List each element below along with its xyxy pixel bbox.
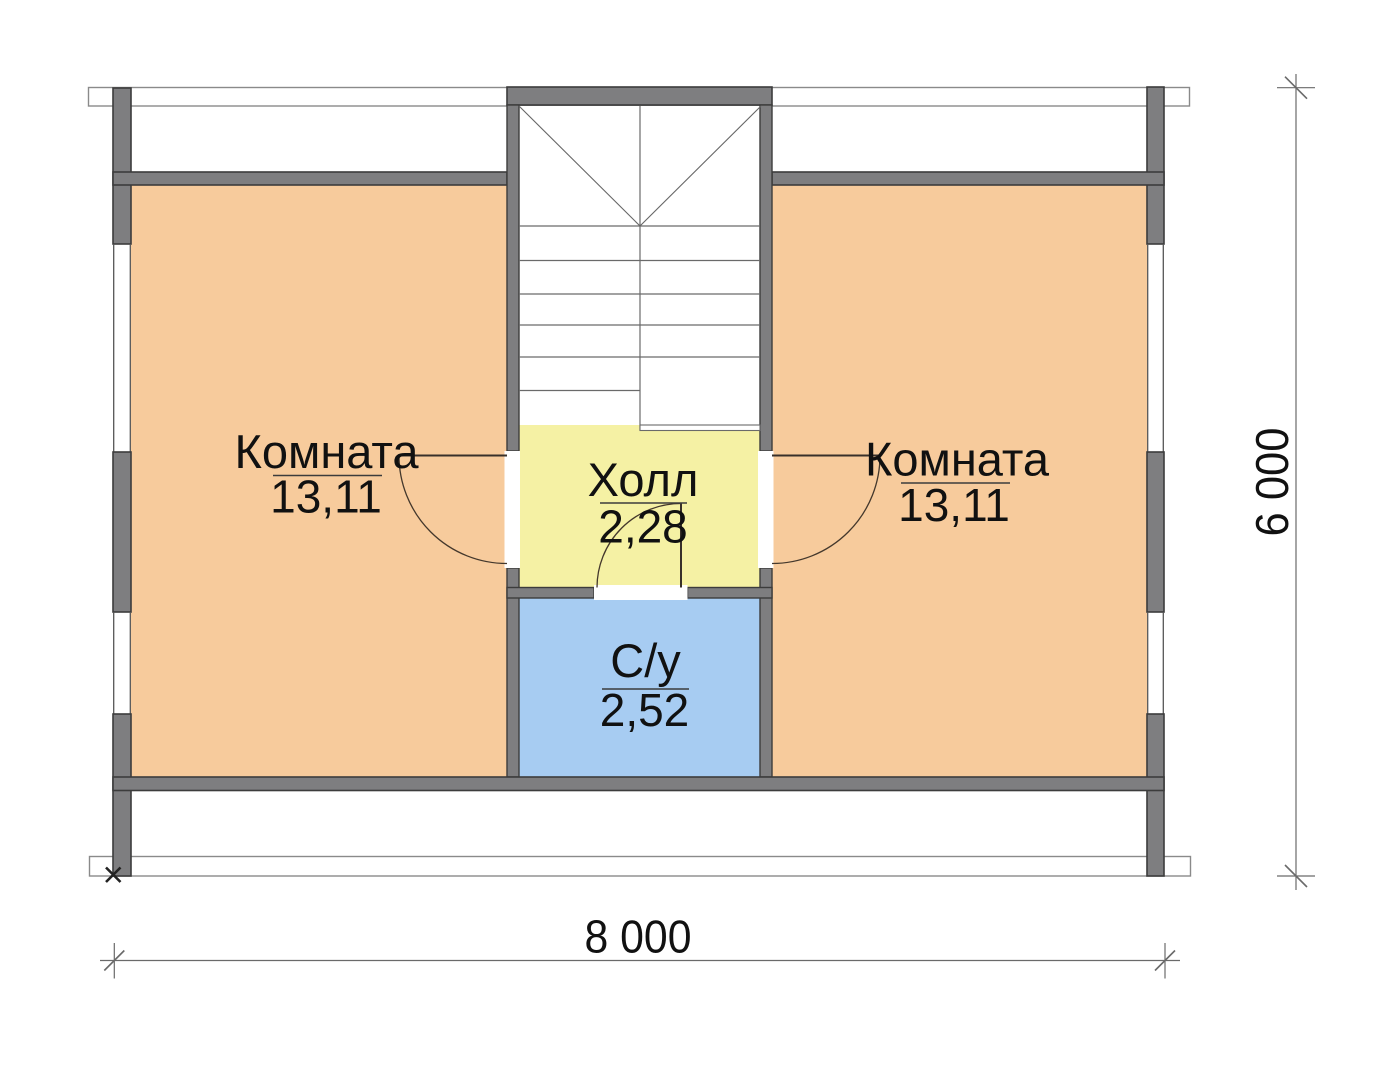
- svg-text:2,52: 2,52: [600, 684, 690, 736]
- svg-text:Комната: Комната: [865, 433, 1050, 486]
- svg-text:Холл: Холл: [588, 453, 699, 506]
- svg-text:2,28: 2,28: [598, 501, 688, 553]
- svg-text:8 000: 8 000: [585, 911, 692, 963]
- svg-text:13,11: 13,11: [898, 479, 1010, 531]
- svg-text:13,11: 13,11: [270, 471, 382, 523]
- svg-text:6 000: 6 000: [1246, 428, 1298, 537]
- svg-text:С/у: С/у: [610, 634, 681, 687]
